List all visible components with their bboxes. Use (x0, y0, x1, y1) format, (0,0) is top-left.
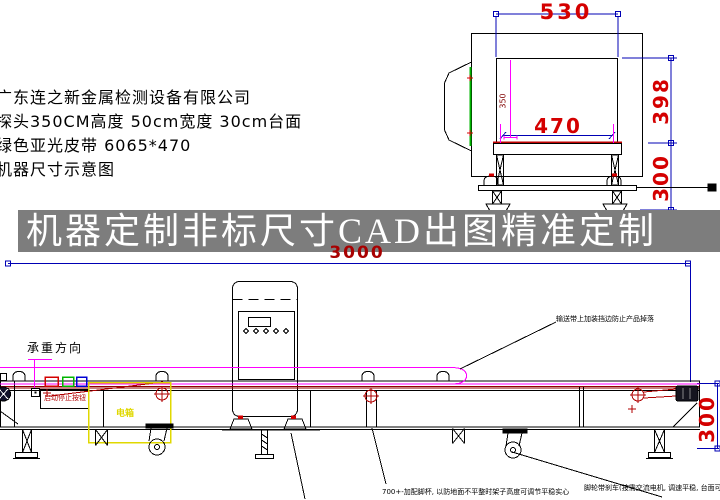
display-screen (249, 318, 271, 327)
cad-sheet: 广东连之新金属检测设备有限公司 探头350CM高度 50cm宽度 30cm台面 … (0, 0, 720, 500)
side-view-drawing (0, 261, 720, 499)
dim-300-side: 300 (695, 395, 719, 443)
base-domes (484, 174, 621, 186)
caster-annotation: 脚轮带刹车(按需交流电机, 调速平稳, 台面可调高度)300 (584, 479, 720, 494)
dim-530: 530 (540, 0, 593, 24)
side-dim-lines (6, 261, 720, 451)
side-panel (445, 62, 472, 151)
foot-annotation: 700+-加配脚杯, 以防地面不平整时架子高度可调节平稳实心 (382, 487, 569, 497)
caster-2 (503, 429, 527, 458)
caster-annotation-text: 脚轮带刹车(按需交流电机, 调速平稳, 台面可调高度) (584, 484, 720, 492)
spec-line-belt: 绿色亚光皮带 6065*470 (0, 132, 191, 156)
caster-1 (146, 424, 173, 455)
hood-annotation: 输送带上加装挡边防止产品掉落 (556, 314, 654, 324)
company-name: 广东连之新金属检测设备有限公司 (0, 84, 251, 108)
electric-box-label: 电箱 (116, 406, 134, 419)
front-view-drawing (445, 12, 717, 213)
dim-398: 398 (649, 77, 673, 125)
dim-350-tunnel: 350 (499, 93, 508, 108)
load-marker (32, 389, 40, 397)
drawing-title: 机器尺寸示意图 (0, 156, 115, 180)
leader-lines (372, 322, 662, 497)
side-legs (0, 403, 697, 459)
load-direction-label: 承重方向 (27, 339, 83, 356)
front-legs (479, 155, 637, 213)
belt-front (494, 144, 622, 155)
detector-hood (0, 360, 700, 389)
start-stop-label: 启动停止按钮 (44, 393, 86, 403)
spec-line-probe: 探头350CM高度 50cm宽度 30cm台面 (0, 108, 302, 132)
dim-3000: 3000 (329, 243, 384, 263)
dim-470: 470 (534, 114, 582, 138)
dim-300-front: 300 (649, 154, 673, 202)
